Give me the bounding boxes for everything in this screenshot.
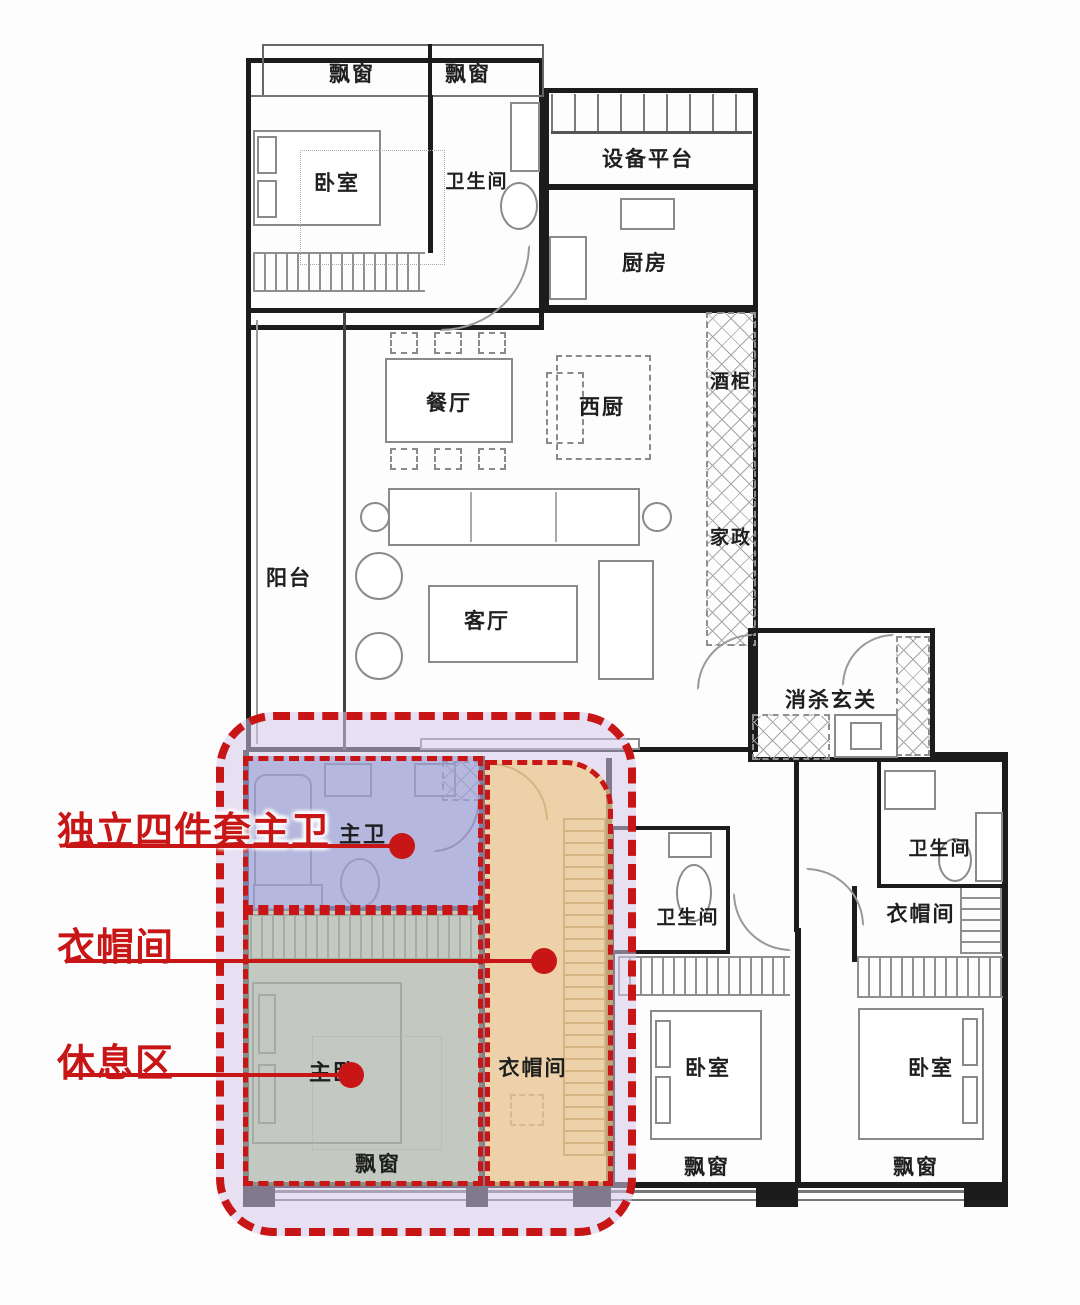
chair bbox=[434, 332, 462, 354]
sink bbox=[668, 832, 712, 858]
room-label-kitchen: 厨房 bbox=[622, 247, 668, 277]
entry-shoe-cabinet bbox=[752, 714, 830, 760]
room-label-housekeeping: 家政 bbox=[710, 523, 752, 550]
stove bbox=[549, 236, 587, 300]
chair bbox=[478, 332, 506, 354]
wall-pier bbox=[756, 1183, 798, 1207]
room-label-entry: 消杀玄关 bbox=[785, 684, 877, 714]
wall-corridor bbox=[794, 762, 799, 932]
door-arc bbox=[806, 868, 864, 926]
room-label-bedroom: 卧室 bbox=[908, 1052, 954, 1082]
callout-dot bbox=[531, 948, 557, 974]
shelf bbox=[975, 812, 1003, 882]
chaise-sofa bbox=[598, 560, 654, 680]
callout-leader-line bbox=[66, 844, 402, 848]
balcony-window-line bbox=[256, 320, 258, 744]
wall-segment bbox=[549, 184, 758, 190]
kitchen-sink bbox=[620, 198, 675, 230]
side-table bbox=[642, 502, 672, 532]
wall-bedroom-divider bbox=[795, 928, 801, 1186]
pillow bbox=[962, 1018, 978, 1066]
pillow bbox=[257, 180, 277, 218]
room-label-equipment-platform: 设备平台 bbox=[602, 143, 694, 173]
wardrobe-hatch bbox=[857, 956, 1003, 998]
wall-bottom bbox=[610, 1182, 1008, 1188]
room-label-living: 客厅 bbox=[464, 605, 510, 635]
callout-rest-area: 休息区 bbox=[57, 1032, 174, 1087]
armchair bbox=[355, 632, 403, 680]
room-label-bedroom: 卧室 bbox=[685, 1052, 731, 1082]
room-label-bay-window: 飘窗 bbox=[684, 1151, 730, 1181]
room-label-bedroom: 卧室 bbox=[314, 167, 360, 197]
wall-segment bbox=[428, 44, 432, 97]
wardrobe-hatch bbox=[618, 956, 790, 996]
pillow bbox=[655, 1076, 671, 1124]
room-label-bathroom: 卫生间 bbox=[656, 903, 719, 930]
room-label-bathroom: 卫生间 bbox=[908, 834, 971, 861]
entry-closet bbox=[896, 636, 930, 756]
callout-leader-line bbox=[66, 1073, 351, 1077]
room-label-bay-window: 飘窗 bbox=[355, 1148, 401, 1178]
chair bbox=[434, 448, 462, 470]
room-label-dining: 餐厅 bbox=[426, 387, 472, 417]
armchair bbox=[355, 552, 403, 600]
side-table bbox=[360, 502, 390, 532]
room-label-west-kitchen: 西厨 bbox=[579, 391, 625, 421]
room-label-cloakroom: 衣帽间 bbox=[887, 898, 956, 928]
room-label-cloakroom: 衣帽间 bbox=[499, 1052, 568, 1082]
callout-dot bbox=[389, 833, 415, 859]
pillow bbox=[655, 1020, 671, 1068]
door-arc bbox=[733, 893, 791, 951]
floor-plan: 飘窗 飘窗 卧室 卫生间 设备平台 厨房 餐厅 西厨 酒柜 家政 阳台 客厅 消… bbox=[0, 0, 1080, 1305]
pillow bbox=[257, 136, 277, 174]
entry-sink-basin bbox=[850, 722, 882, 750]
chair bbox=[478, 448, 506, 470]
room-label-bathroom: 卫生间 bbox=[445, 167, 508, 194]
bay-window-top-outline bbox=[262, 44, 544, 97]
room-label-bay-window: 飘窗 bbox=[893, 1151, 939, 1181]
wardrobe-hatch bbox=[960, 888, 1002, 954]
room-label-bay-window: 飘窗 bbox=[329, 58, 375, 88]
sofa bbox=[388, 488, 640, 546]
cabinet-column bbox=[706, 312, 756, 646]
sink bbox=[884, 770, 936, 810]
equipment-louver bbox=[551, 94, 752, 134]
balcony-sliding-door-line bbox=[343, 312, 346, 750]
pillow bbox=[962, 1076, 978, 1124]
room-label-bay-window: 飘窗 bbox=[445, 58, 491, 88]
sofa-cushion-line bbox=[555, 492, 557, 542]
wall-pier bbox=[964, 1183, 1008, 1207]
window-sill-line bbox=[251, 95, 541, 97]
chair bbox=[390, 332, 418, 354]
room-label-wine-cabinet: 酒柜 bbox=[710, 367, 752, 394]
callout-leader-line bbox=[66, 959, 544, 963]
callout-dot bbox=[338, 1062, 364, 1088]
chair bbox=[390, 448, 418, 470]
room-label-balcony: 阳台 bbox=[266, 562, 312, 592]
sofa-cushion-line bbox=[470, 492, 472, 542]
washer bbox=[510, 102, 540, 172]
master-suite-dashed-border bbox=[216, 712, 636, 1236]
